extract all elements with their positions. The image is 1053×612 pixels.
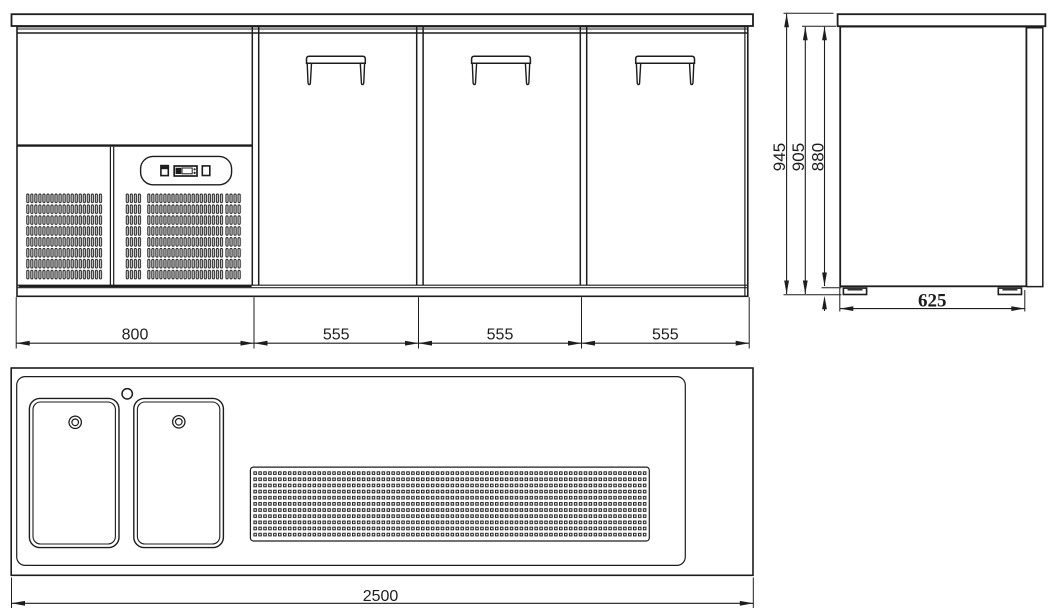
svg-text:555: 555 xyxy=(323,327,350,344)
svg-text:2500: 2500 xyxy=(363,588,399,605)
svg-text:880: 880 xyxy=(808,143,827,171)
svg-text:625: 625 xyxy=(918,290,947,311)
svg-text:555: 555 xyxy=(487,327,514,344)
svg-text:555: 555 xyxy=(652,327,679,344)
svg-text:945: 945 xyxy=(770,143,789,171)
svg-text:905: 905 xyxy=(789,143,808,171)
svg-text:800: 800 xyxy=(122,327,149,344)
